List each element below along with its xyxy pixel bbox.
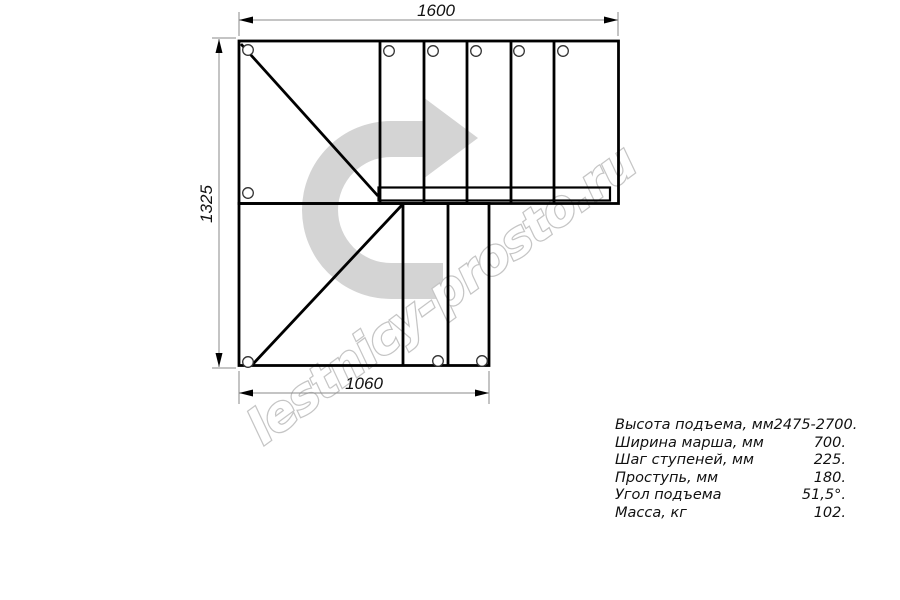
dim-arrow-up bbox=[216, 39, 223, 53]
spec-value: 102. bbox=[814, 505, 846, 523]
spec-label: Масса, кг bbox=[615, 505, 687, 523]
dim-arrow-right bbox=[475, 390, 489, 397]
spec-table: Высота подъема, мм 2475-2700. Ширина мар… bbox=[615, 417, 846, 522]
spec-label: Шаг ступеней, мм bbox=[615, 452, 754, 470]
spec-row-step-pitch: Шаг ступеней, мм 225. bbox=[615, 452, 846, 470]
spec-value: 225. bbox=[814, 452, 846, 470]
dimension-top: 1600 bbox=[239, 1, 618, 36]
spec-value: 2475-2700. bbox=[774, 417, 858, 435]
spec-label: Ширина марша, мм bbox=[615, 435, 764, 453]
dim-arrow-down bbox=[216, 353, 223, 367]
spec-value: 180. bbox=[814, 470, 846, 488]
dimension-left: 1325 bbox=[197, 38, 236, 368]
spec-label: Проступь, мм bbox=[615, 470, 718, 488]
dimension-left-value: 1325 bbox=[197, 185, 216, 223]
spec-row-height: Высота подъема, мм 2475-2700. bbox=[615, 417, 846, 435]
spec-value: 700. bbox=[814, 435, 846, 453]
spec-row-flight-width: Ширина марша, мм 700. bbox=[615, 435, 846, 453]
spec-row-mass: Масса, кг 102. bbox=[615, 505, 846, 523]
spec-row-angle: Угол подъема 51,5°. bbox=[615, 487, 846, 505]
stair-drawing-page: lestnicy-prosto.ru bbox=[0, 0, 900, 600]
spec-label: Высота подъема, мм bbox=[615, 417, 774, 435]
dimension-top-value: 1600 bbox=[417, 1, 455, 20]
dim-arrow-right bbox=[604, 17, 618, 24]
dim-arrow-left bbox=[239, 390, 253, 397]
dimension-bottom-value: 1060 bbox=[345, 374, 383, 393]
spec-label: Угол подъема bbox=[615, 487, 722, 505]
upper-stringer-diagonal bbox=[241, 44, 378, 196]
watermark-text: lestnicy-prosto.ru bbox=[237, 133, 647, 455]
dim-arrow-left bbox=[239, 17, 253, 24]
spec-row-tread: Проступь, мм 180. bbox=[615, 470, 846, 488]
spec-value: 51,5°. bbox=[802, 487, 846, 505]
